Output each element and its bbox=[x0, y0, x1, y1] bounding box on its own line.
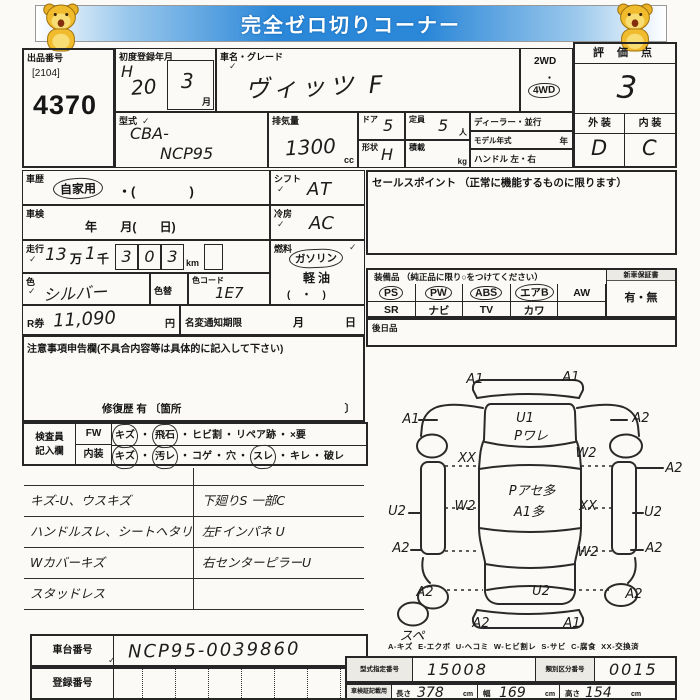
check-mark: ✓ bbox=[28, 287, 36, 297]
diagram-damage-label: A2 bbox=[471, 616, 489, 631]
registration-cell-separator bbox=[175, 669, 176, 698]
diagram-damage-label: A2 bbox=[391, 541, 409, 556]
check-mark: ✓ bbox=[277, 220, 285, 230]
diagram-labels: A1A1A1U1PワレA2XXW2A2U2W2Pアセ多A1多XXU2A2W2A2… bbox=[388, 370, 682, 644]
handwritten-note: 右センターピラーU bbox=[202, 548, 362, 579]
fw-items-row: キズ・飛石・ヒビ割・リペア跡・×要 bbox=[112, 424, 368, 446]
inspector-box: 検査員 記入欄 FW 内装 キズ・飛石・ヒビ割・リペア跡・×要 キズ・汚レ・コゲ… bbox=[22, 422, 368, 466]
warranty-cell: 新車保証書 有・無 bbox=[606, 270, 675, 316]
mileage-digit-box: 0 bbox=[138, 244, 161, 270]
ac-box: 冷房 ✓ AC bbox=[270, 205, 365, 240]
equipment-item: ABS bbox=[470, 285, 503, 300]
first-reg-year: 20 bbox=[130, 74, 157, 100]
notes-right-column: 下廻りS 一部C左Fインパネ U右センターピラーU bbox=[202, 486, 362, 579]
equipment-item: TV bbox=[480, 304, 493, 316]
displacement-value: 1300 bbox=[284, 134, 336, 161]
car-name: ヴィッツ F bbox=[244, 65, 387, 105]
notes-divider bbox=[193, 468, 194, 609]
man-label: 万 bbox=[70, 250, 82, 267]
item-separator: ・ bbox=[278, 451, 288, 462]
registration-cell-separator bbox=[307, 669, 308, 698]
color-box: 色 ✓ シルバー bbox=[22, 273, 150, 305]
score-value: 3 bbox=[616, 69, 638, 106]
exterior-grade-cell: D bbox=[575, 134, 625, 166]
recycle-ticket-box: R券 11,090 円 bbox=[22, 305, 180, 335]
item-separator: ・ bbox=[214, 451, 224, 462]
model-year-unit: 年 bbox=[559, 135, 568, 147]
auction-number-box: 出品番号 [2104] 4370 bbox=[22, 48, 115, 168]
inspection-label: 車検 bbox=[26, 207, 44, 220]
diagram-damage-label: A2 bbox=[664, 461, 682, 476]
equipment-cell: ABS bbox=[463, 284, 511, 301]
banner-title: 完全ゼロ切りコーナー bbox=[241, 9, 461, 38]
history-value-circled: 自家用 bbox=[53, 177, 104, 200]
shift-label: シフト bbox=[274, 172, 301, 185]
diagram-damage-label: A1 bbox=[561, 370, 579, 385]
diagram-damage-label: W2 bbox=[454, 499, 475, 514]
check-mark: ✓ bbox=[108, 656, 116, 666]
mileage-digit: 3 bbox=[121, 247, 131, 266]
color-code: 1E7 bbox=[215, 284, 244, 302]
interior-grade-cell: C bbox=[625, 134, 675, 166]
check-mark: ✓ bbox=[277, 185, 285, 195]
drive-4wd-circled: 4WD bbox=[528, 82, 561, 98]
length-label: 長さ bbox=[396, 688, 411, 699]
mileage-empty-box bbox=[204, 244, 223, 270]
repair-history-close: 〕 bbox=[345, 401, 356, 416]
fuel-diesel: 軽油 bbox=[303, 269, 333, 286]
inspection-item: キレ bbox=[290, 451, 310, 462]
inspection-item: 汚レ bbox=[152, 445, 179, 470]
mileage-digit-box: 3 bbox=[161, 244, 184, 270]
history-paren: ・( ) bbox=[118, 181, 194, 200]
mileage-box: 走行 ✓ 13 万 1 千 303 km bbox=[22, 240, 270, 273]
diagram-damage-label: XX bbox=[578, 499, 598, 514]
type-cert-value: 15008 bbox=[427, 660, 488, 679]
later-items-label: 後日品 bbox=[372, 322, 398, 334]
diagram-damage-label: A2 bbox=[415, 585, 433, 600]
auction-number: 4370 bbox=[33, 90, 97, 121]
shape-box: 形状 H bbox=[358, 140, 405, 168]
recycle-ticket-value: 11,090 bbox=[52, 307, 116, 331]
class-value: 0015 bbox=[609, 660, 658, 679]
registration-cell-separator bbox=[340, 669, 341, 698]
sales-point-box: セールスポイント （正常に機能するものに限ります） bbox=[366, 170, 677, 255]
displacement-label: 排気量 bbox=[272, 114, 299, 127]
notes-left-column: キズ-U、ウスキズハンドルスレ、シートヘタリWカバーキズスタッドレス bbox=[30, 486, 190, 610]
diagram-damage-label: XX bbox=[457, 451, 477, 466]
diagram-damage-label: Pワレ bbox=[514, 429, 548, 444]
registration-cell-separator bbox=[274, 669, 275, 698]
equipment-item: PW bbox=[425, 285, 452, 300]
item-separator: ・ bbox=[180, 430, 190, 441]
model-code-box: 型式 ✓ CBA- NCP95 bbox=[115, 112, 268, 168]
equipment-cell: AW bbox=[558, 284, 606, 301]
diagram-damage-label: Pアセ多 bbox=[509, 484, 557, 499]
doors-label: ドア bbox=[362, 114, 378, 125]
registration-number-label: 登録番号 bbox=[32, 669, 114, 698]
inspector-label-2: 記入欄 bbox=[24, 443, 75, 457]
equipment-cell: TV bbox=[463, 302, 511, 318]
auction-number-sub: [2104] bbox=[32, 68, 60, 79]
equipment-box: 装備品 （純正品に限り○をつけてください） PSPWABSエアBAW SRナビT… bbox=[366, 268, 677, 318]
model-year-box: モデル年式 年 bbox=[470, 131, 573, 149]
equipment-item: PS bbox=[379, 285, 403, 300]
diagram-damage-label: A1 bbox=[465, 372, 483, 387]
chassis-number-value: NCP95-0039860 bbox=[128, 638, 301, 662]
shape-value: H bbox=[381, 145, 393, 164]
type-cert-box: 型式指定番号 15008 類別区分番号 0015 bbox=[345, 656, 677, 683]
capacity-value: 5 bbox=[438, 116, 448, 135]
score-label: 評 価 点 bbox=[575, 44, 675, 64]
chassis-number-box: 車台番号 ✓ NCP95-0039860 bbox=[30, 634, 368, 667]
shift-value: AT bbox=[307, 179, 333, 200]
later-items-box: 後日品 bbox=[366, 318, 677, 347]
drive-2wd: 2WD bbox=[534, 56, 556, 67]
displacement-unit: cc bbox=[344, 155, 354, 165]
diagram-damage-label: A1 bbox=[562, 616, 580, 631]
fuel-label: 燃料 bbox=[274, 242, 292, 255]
inspection-item: リペア跡 bbox=[236, 430, 276, 441]
equipment-item: エアB bbox=[515, 283, 554, 301]
length-value: 378 bbox=[417, 685, 444, 700]
interior-row-label: 内装 bbox=[76, 445, 112, 465]
equipment-cell: カワ bbox=[511, 302, 559, 318]
width-value: 169 bbox=[499, 685, 526, 700]
model-code-1: CBA- bbox=[130, 124, 169, 143]
month-label: 月 bbox=[293, 314, 304, 330]
diagram-damage-label: U2 bbox=[532, 584, 550, 599]
handwritten-note: Wカバーキズ bbox=[30, 548, 190, 579]
registration-number-box: 登録番号 bbox=[30, 667, 368, 700]
inspector-label-1: 検査員 bbox=[24, 429, 75, 443]
model-code-2: NCP95 bbox=[160, 144, 213, 163]
diagram-damage-label: U1 bbox=[516, 411, 534, 426]
equipment-cell bbox=[558, 302, 606, 318]
handwritten-note: キズ-U、ウスキズ bbox=[30, 486, 190, 517]
item-separator: ・ bbox=[312, 451, 322, 462]
doors-value: 5 bbox=[383, 116, 393, 135]
mileage-digit-box: 3 bbox=[115, 244, 138, 270]
interior-grade: C bbox=[642, 136, 657, 160]
diagram-damage-label: U2 bbox=[388, 504, 406, 519]
equipment-item: カワ bbox=[524, 303, 545, 318]
item-separator: ・ bbox=[224, 430, 234, 441]
warranty-label: 新車保証書 bbox=[607, 270, 675, 281]
diagram-damage-label: W2 bbox=[577, 545, 598, 560]
warranty-value: 有・無 bbox=[607, 289, 675, 305]
teddy-bear-icon bbox=[38, 1, 84, 53]
handwritten-note: スタッドレス bbox=[30, 579, 190, 610]
width-label: 幅 bbox=[483, 688, 491, 699]
auction-sheet: 完全ゼロ切りコーナー 出品番号 [2104] 4370 初度登録年月 H 20 … bbox=[0, 0, 700, 700]
dealer-box: ディーラー・並行 bbox=[470, 112, 573, 131]
history-box: 車歴 自家用 ・( ) bbox=[22, 170, 270, 205]
inspector-label: 検査員 記入欄 bbox=[24, 424, 76, 464]
registration-cell-separator bbox=[241, 669, 242, 698]
sen-label: 千 bbox=[97, 250, 109, 267]
shape-label: 形状 bbox=[362, 142, 378, 153]
handle-label: ハンドル 左・右 bbox=[474, 153, 536, 165]
equipment-cell: PW bbox=[416, 284, 464, 301]
dimensions-box: 車検証記載用 長さ 378 cm 幅 169 cm 高さ 154 cm bbox=[345, 683, 677, 700]
item-separator: ・ bbox=[140, 430, 150, 441]
inspection-fields: 年 月( 日) bbox=[85, 218, 176, 235]
interior-label: 内 装 bbox=[625, 114, 675, 134]
color-value: シルバー bbox=[42, 278, 107, 305]
diagram-damage-label: A1 bbox=[401, 412, 419, 427]
month-suffix: 月 bbox=[202, 95, 211, 108]
mileage-unit: km bbox=[186, 258, 199, 268]
diagram-damage-label: A2 bbox=[644, 541, 662, 556]
interior-items-row: キズ・汚レ・コゲ・穴・スレ・キレ・破レ bbox=[112, 445, 368, 467]
mileage-man: 13 bbox=[45, 245, 67, 265]
capacity-box: 定員 5 人 bbox=[405, 112, 470, 140]
handwritten-note: ハンドルスレ、シートヘタリ bbox=[30, 517, 190, 548]
item-separator: ・ bbox=[278, 430, 288, 441]
car-name-box: 車名・グレード ✓ ヴィッツ F bbox=[216, 48, 520, 112]
type-cert-label: 型式指定番号 bbox=[347, 658, 413, 681]
inspection-item: キズ bbox=[112, 445, 139, 470]
registration-number-cells bbox=[114, 669, 366, 698]
first-registration-box: 初度登録年月 H 20 3 月 bbox=[115, 48, 216, 112]
check-mark: ✓ bbox=[229, 62, 237, 72]
mileage-sen: 1 bbox=[85, 244, 96, 264]
caution-header: 注意事項申告欄(不具合内容等は具体的に記入して下さい) bbox=[27, 340, 283, 355]
divider bbox=[477, 685, 478, 698]
item-separator: ・ bbox=[238, 451, 248, 462]
equipment-header: 装備品 （純正品に限り○をつけてください） bbox=[374, 271, 543, 283]
handwritten-note: 下廻りS 一部C bbox=[202, 486, 362, 517]
fuel-gasoline-circled: ガソリン bbox=[289, 248, 344, 269]
capacity-label: 定員 bbox=[409, 114, 425, 125]
color-change-label: 色替 bbox=[154, 284, 172, 297]
class-label: 類別区分番号 bbox=[535, 658, 595, 681]
fuel-box: 燃料 ✓ ガソリン 軽油 ( ・ ) bbox=[270, 240, 365, 305]
item-separator: ・ bbox=[180, 451, 190, 462]
load-unit: kg bbox=[458, 157, 467, 166]
diagram-damage-label: U2 bbox=[644, 505, 662, 520]
shift-box: シフト ✓ AT bbox=[270, 170, 365, 205]
day-label: 日 bbox=[345, 314, 356, 330]
inspection-item: 穴 bbox=[226, 451, 236, 462]
equipment-cell: ナビ bbox=[416, 302, 464, 318]
history-label: 車歴 bbox=[26, 172, 44, 185]
dealer-label: ディーラー・並行 bbox=[474, 116, 541, 128]
fw-row-label: FW bbox=[76, 424, 112, 445]
equipment-row-2: SRナビTVカワ bbox=[368, 301, 606, 318]
cm-unit: cm bbox=[631, 691, 641, 698]
registration-cell-separator bbox=[142, 669, 143, 698]
ac-label: 冷房 bbox=[274, 207, 292, 220]
auction-number-label: 出品番号 bbox=[27, 51, 63, 64]
dimensions-label: 車検証記載用 bbox=[347, 685, 392, 698]
chassis-number-label: 車台番号 bbox=[32, 636, 114, 665]
name-change-box: 名変通知期限 月 日 bbox=[180, 305, 365, 335]
equipment-item: ナビ bbox=[428, 303, 449, 318]
caution-box: 注意事項申告欄(不具合内容等は具体的に記入して下さい) 修復歴 有 〔箇所 〕 bbox=[22, 335, 365, 422]
diagram-damage-label: W2 bbox=[575, 446, 596, 461]
check-mark: ✓ bbox=[349, 243, 357, 253]
repair-history-label: 修復歴 有 〔箇所 bbox=[102, 401, 181, 416]
height-value: 154 bbox=[585, 685, 612, 700]
doors-box: ドア 5 bbox=[358, 112, 405, 140]
equipment-item: AW bbox=[573, 287, 590, 299]
inspection-item: ヒビ割 bbox=[192, 430, 222, 441]
cm-unit: cm bbox=[545, 691, 555, 698]
first-reg-month-box: 3 月 bbox=[167, 60, 214, 110]
handwritten-note: 左Fインパネ U bbox=[202, 517, 362, 548]
score-area: 3 bbox=[575, 64, 675, 114]
load-box: 積載 kg bbox=[405, 140, 470, 168]
mileage-digit: 3 bbox=[167, 247, 177, 266]
equipment-cell: エアB bbox=[511, 284, 559, 301]
load-label: 積載 bbox=[409, 142, 425, 153]
equipment-item: SR bbox=[384, 304, 399, 316]
handle-box: ハンドル 左・右 bbox=[470, 149, 573, 168]
damage-legend: A-キズ E-エクボ U-ヘコミ W-ヒビ割レ S-サビ C-腐食 XX-交換済 bbox=[388, 641, 639, 652]
inspection-box: 車検 年 月( 日) bbox=[22, 205, 270, 240]
first-reg-month: 3 bbox=[181, 69, 194, 93]
model-year-label: モデル年式 bbox=[474, 135, 512, 146]
divider bbox=[559, 685, 560, 698]
name-change-label: 名変通知期限 bbox=[185, 315, 242, 329]
item-separator: ・ bbox=[140, 451, 150, 462]
recycle-ticket-label: R券 bbox=[27, 315, 44, 330]
inspection-item: 破レ bbox=[324, 451, 344, 462]
capacity-unit: 人 bbox=[459, 127, 467, 138]
color-code-box: 色コード 1E7 bbox=[188, 273, 270, 305]
check-mark: ✓ bbox=[29, 255, 37, 265]
registration-cell-separator bbox=[208, 669, 209, 698]
mileage-label: 走行 bbox=[26, 242, 44, 255]
exterior-label: 外 装 bbox=[575, 114, 625, 134]
sales-point-header: セールスポイント （正常に機能するものに限ります） bbox=[372, 175, 627, 190]
diagram-damage-label: A2 bbox=[631, 411, 649, 426]
displacement-box: 排気量 1300 cc bbox=[268, 112, 358, 168]
equipment-cell: PS bbox=[368, 284, 416, 301]
diagram-damage-label: A1多 bbox=[513, 505, 545, 520]
score-box: 評 価 点 3 外 装 内 装 D C bbox=[573, 42, 677, 168]
yen-label: 円 bbox=[165, 315, 175, 330]
mileage-digit: 0 bbox=[144, 247, 154, 266]
fuel-paren: ( ・ ) bbox=[287, 286, 326, 301]
equipment-row-1: PSPWABSエアBAW bbox=[368, 284, 606, 301]
inspection-item: スレ bbox=[250, 445, 277, 470]
inspection-item: コゲ bbox=[192, 451, 212, 462]
cm-unit: cm bbox=[463, 691, 473, 698]
drive-type-box: 2WD ・ 4WD bbox=[520, 48, 573, 112]
equipment-cell: SR bbox=[368, 302, 416, 318]
inspection-item: ×要 bbox=[290, 430, 306, 441]
ac-value: AC bbox=[309, 213, 334, 234]
exterior-grade: D bbox=[591, 136, 607, 160]
diagram-damage-label: A2 bbox=[624, 587, 642, 602]
color-change-box: 色替 bbox=[150, 273, 188, 305]
car-damage-diagram: A1A1A1U1PワレA2XXW2A2U2W2Pアセ多A1多XXU2A2W2A2… bbox=[375, 366, 690, 644]
height-label: 高さ bbox=[565, 688, 580, 699]
banner: 完全ゼロ切りコーナー bbox=[35, 5, 667, 42]
